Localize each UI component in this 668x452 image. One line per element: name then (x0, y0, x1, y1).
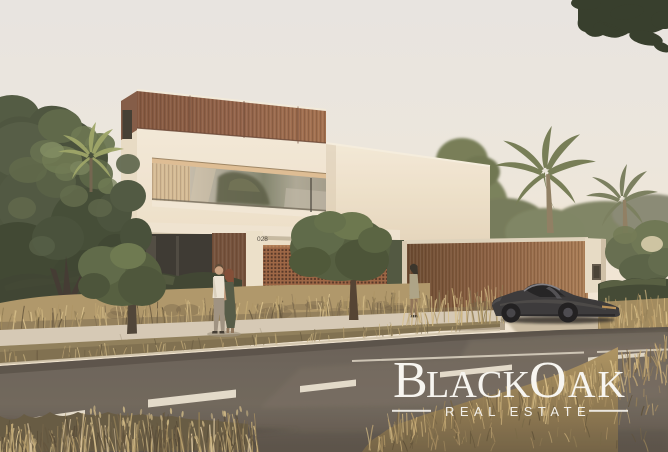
svg-text:LACK: LACK (426, 364, 531, 406)
svg-text:AK: AK (568, 364, 627, 406)
svg-text:B: B (393, 352, 428, 409)
svg-text:REAL ESTATE: REAL ESTATE (445, 404, 591, 419)
svg-text:O: O (529, 352, 567, 409)
